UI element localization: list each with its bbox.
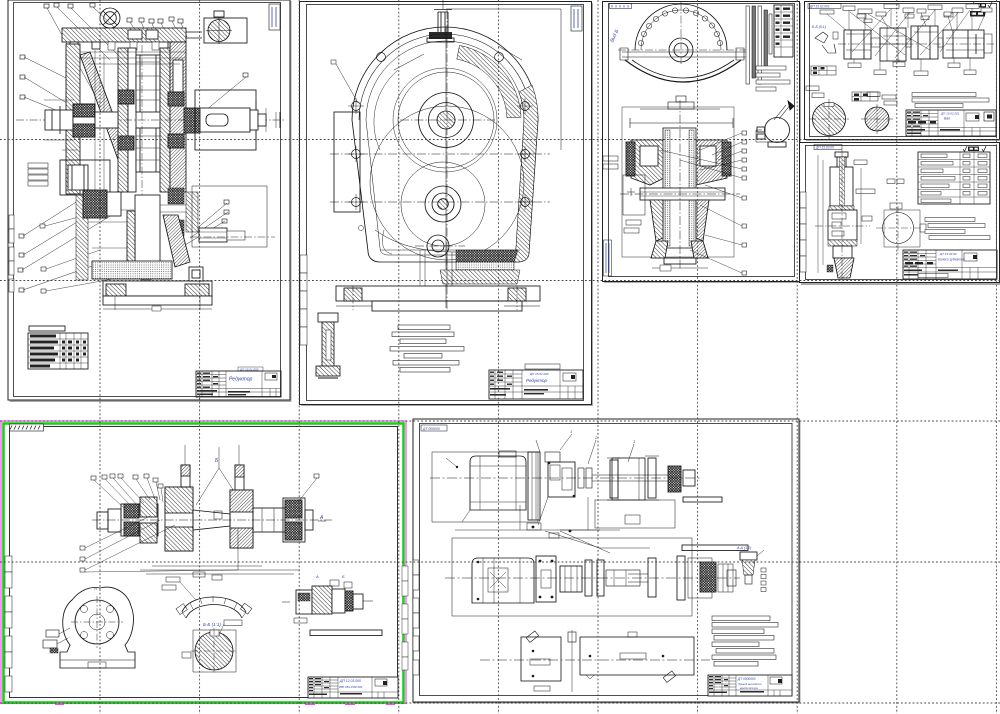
- svg-text:А: А: [315, 574, 319, 579]
- svg-text:А-А (1:2): А-А (1:2): [736, 546, 751, 550]
- svg-text:Б-Б (5:1): Б-Б (5:1): [812, 25, 826, 29]
- svg-text:ДТ 0000000: ДТ 0000000: [737, 677, 756, 681]
- svg-text:ДТ 15.03.00: ДТ 15.03.00: [939, 252, 957, 256]
- svg-text:1: 1: [570, 429, 572, 434]
- svg-text:ДТ 000000: ДТ 000000: [422, 427, 440, 431]
- svg-text:ДП 15.02.001: ДП 15.02.001: [809, 5, 830, 9]
- svg-text:Редуктор: Редуктор: [526, 378, 547, 383]
- svg-text:Вал: Вал: [944, 117, 950, 121]
- svg-text:ДП 15.01.000: ДП 15.01.000: [239, 368, 259, 372]
- svg-text:А: А: [319, 515, 324, 521]
- svg-text:вентилятора: вентилятора: [740, 687, 758, 690]
- svg-text:ДП 15.01.000: ДП 15.01.000: [529, 372, 549, 376]
- svg-text:Привод выходного: Привод выходного: [738, 682, 762, 686]
- svg-text:Б-Б (1:1): Б-Б (1:1): [203, 622, 221, 627]
- svg-text:Редуктор: Редуктор: [229, 377, 253, 383]
- svg-text:ДП 12.03.000: ДП 12.03.000: [339, 679, 361, 683]
- svg-text:Б: Б: [342, 574, 345, 579]
- svg-text:ДП 15.02.001: ДП 15.02.001: [940, 112, 960, 116]
- svg-text:Колесо зубчатое: Колесо зубчатое: [938, 258, 965, 262]
- svg-text:ИВТ 064.1502.004: ИВТ 064.1502.004: [339, 685, 363, 689]
- svg-text:А: А: [93, 586, 97, 591]
- svg-text:ДП 15.03.00: ДП 15.03.00: [815, 146, 834, 150]
